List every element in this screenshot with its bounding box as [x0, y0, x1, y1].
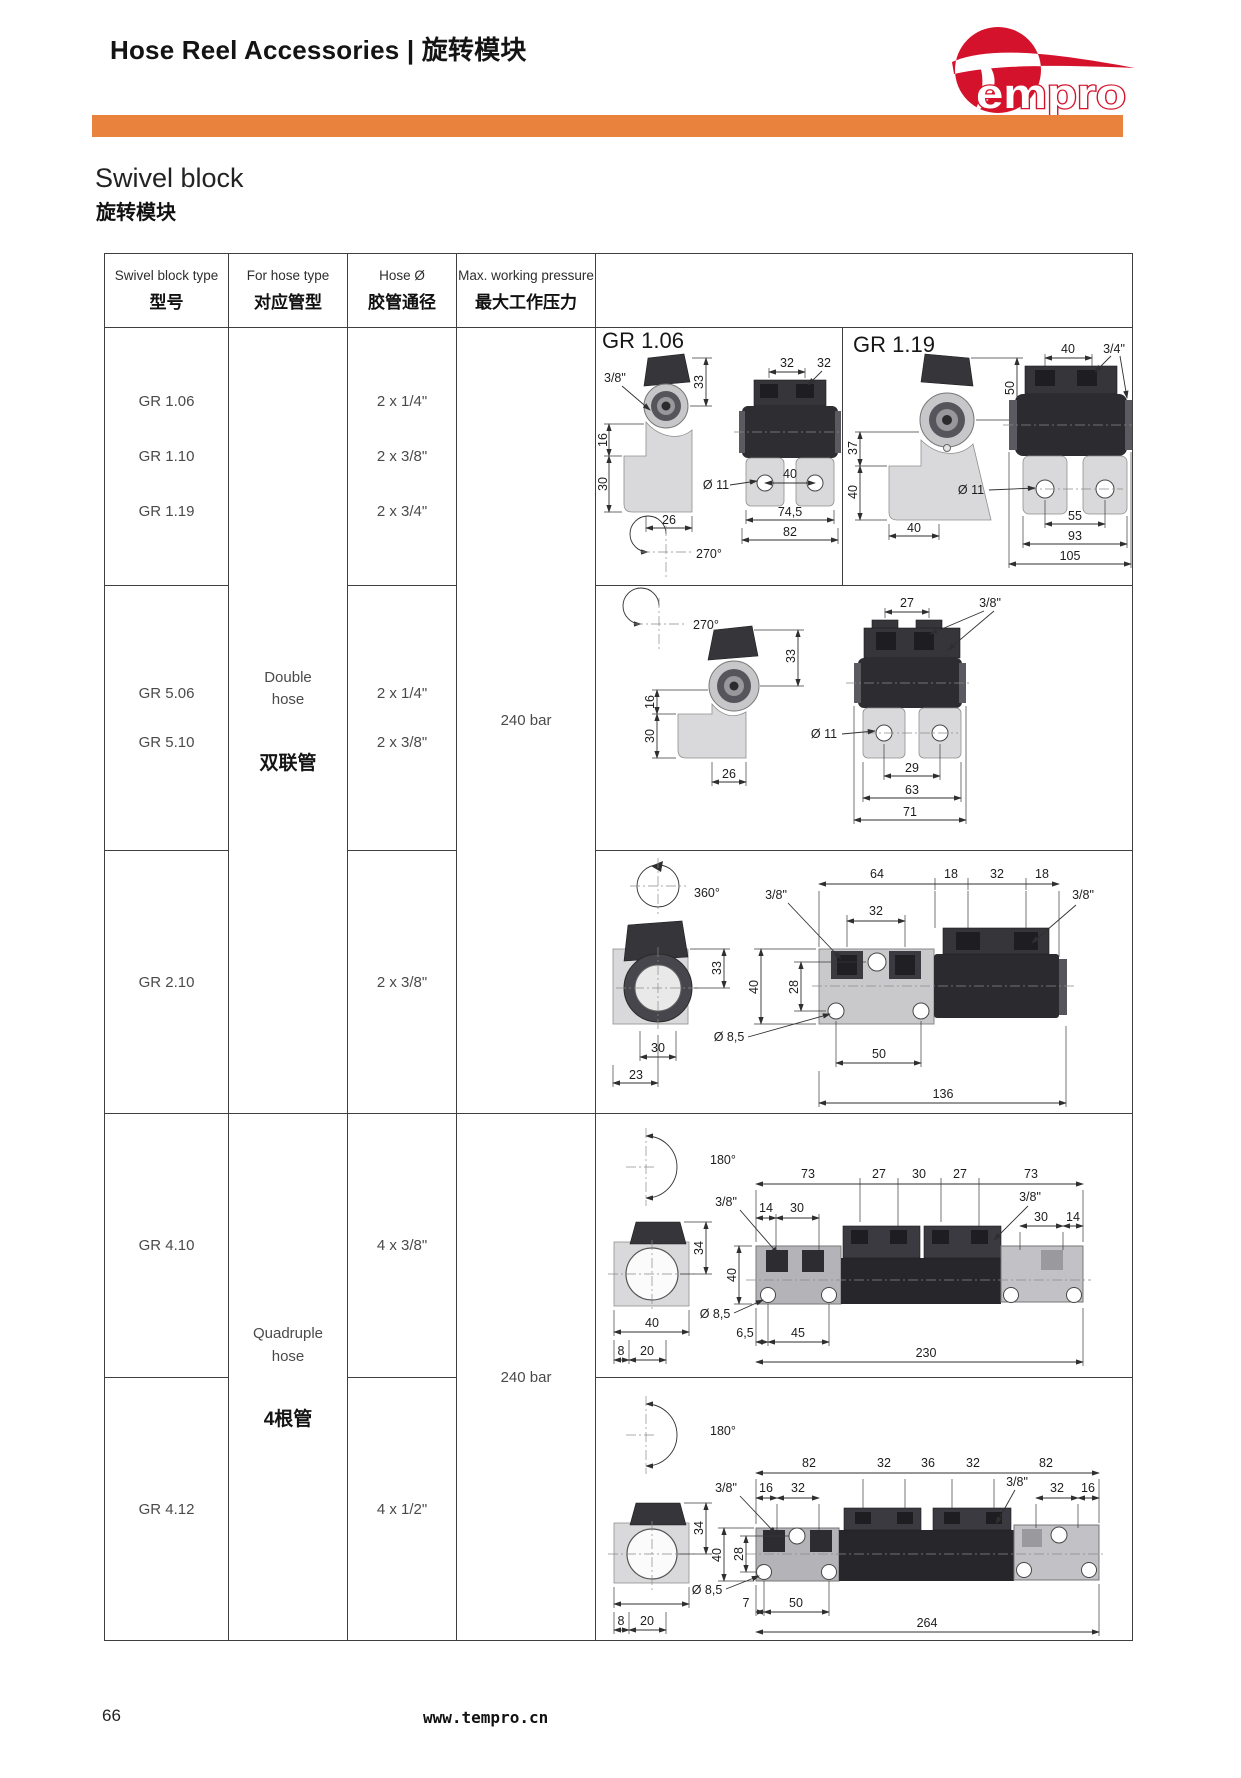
- dim-82: 82: [783, 525, 797, 539]
- dim-16: 16: [596, 433, 610, 447]
- dim-32-ports: 32: [869, 904, 883, 918]
- tempro-logo: empro: [938, 16, 1138, 118]
- model-name: GR 5.06: [139, 685, 195, 702]
- dim-14a: 14: [759, 1201, 773, 1215]
- hose-dia-group-5: 4 x 1/2": [348, 1378, 457, 1641]
- header-zh: 对应管型: [254, 288, 322, 313]
- hose-dia: 2 x 3/8": [377, 448, 427, 465]
- dim-105: 105: [1060, 549, 1081, 563]
- thread-label-left: 3/8": [715, 1195, 737, 1209]
- header-drawings: [596, 254, 1133, 328]
- drawing-cell-gr119: GR 1.19 50 37 40: [843, 328, 1133, 586]
- drawing-gr5: 270° 33 16 30 26: [596, 586, 1132, 850]
- dim-33: 33: [710, 961, 724, 975]
- model-name: GR 4.12: [139, 1501, 195, 1518]
- dim-30: 30: [596, 477, 610, 491]
- dim-50: 50: [872, 1047, 886, 1061]
- rotation-angle: 270°: [696, 547, 722, 561]
- drawing-gr412: 180° 34 8 20: [596, 1378, 1132, 1640]
- gr106-front-view: [734, 380, 842, 506]
- dim-26: 26: [662, 513, 676, 527]
- header-max-working-pressure: Max. working pressure 最大工作压力: [457, 254, 596, 328]
- dim-34: 34: [692, 1241, 706, 1255]
- gr106-side-view: [624, 354, 692, 512]
- dim-dia11: Ø 11: [703, 478, 729, 492]
- dim-32a-top: 32: [877, 1456, 891, 1470]
- dim-32b: 32: [817, 356, 831, 370]
- thread-label-left: 3/8": [715, 1481, 737, 1495]
- dim-27: 27: [900, 596, 914, 610]
- drawing-cell-gr5: 270° 33 16 30 26: [596, 586, 1133, 851]
- drawing-gr119: GR 1.19 50 37 40: [843, 328, 1132, 585]
- dim-34: 34: [692, 1521, 706, 1535]
- dim-73b: 73: [1024, 1167, 1038, 1181]
- swivel-block-table: Swivel block type 型号 For hose type 对应管型 …: [104, 253, 1133, 1641]
- drawing-gr410: 180° 34 40 8 20: [596, 1114, 1132, 1377]
- dim-93: 93: [1068, 529, 1082, 543]
- dim-30a: 30: [790, 1201, 804, 1215]
- header-en: Swivel block type: [115, 268, 219, 283]
- dim-230: 230: [916, 1346, 937, 1360]
- dim-45: 45: [791, 1326, 805, 1340]
- hose-type-en: Double hose: [247, 667, 329, 712]
- hose-type-double: Double hose 双联管: [229, 328, 348, 1114]
- dim-18a: 18: [944, 867, 958, 881]
- dim-27b: 27: [953, 1167, 967, 1181]
- model-name: GR 4.10: [139, 1237, 195, 1254]
- gr410-front-view: [746, 1226, 1091, 1304]
- gr119-front-view: [1003, 366, 1132, 514]
- dim-40-front: 40: [710, 1548, 724, 1562]
- drawing-cell-gr106: GR 1.06 3/8" 33 16 30: [596, 328, 843, 586]
- dim-23: 23: [629, 1068, 643, 1082]
- gr2-side-view: [613, 921, 700, 1031]
- gr5-front-view: [846, 620, 972, 758]
- rotation-angle: 180°: [710, 1153, 736, 1167]
- rotation-180-icon: [626, 1396, 677, 1474]
- dim-26: 26: [722, 767, 736, 781]
- pressure-value: 240 bar: [501, 712, 552, 729]
- hose-dia: 2 x 1/4": [377, 685, 427, 702]
- gr412-side-view: [608, 1503, 696, 1590]
- dim-64: 64: [870, 867, 884, 881]
- dim-33: 33: [692, 375, 706, 389]
- models-group-5: GR 4.12: [105, 1378, 229, 1641]
- dim-71: 71: [903, 805, 917, 819]
- dim-6-5: 6,5: [736, 1326, 753, 1340]
- pressure-value: 240 bar: [501, 1369, 552, 1386]
- dim-7: 7: [743, 1596, 750, 1610]
- hose-dia: 4 x 1/2": [377, 1501, 427, 1518]
- dim-73a: 73: [801, 1167, 815, 1181]
- dim-50: 50: [789, 1596, 803, 1610]
- dim-40: 40: [783, 467, 797, 481]
- dim-32-top: 32: [990, 867, 1004, 881]
- dim-40-bottom: 40: [907, 521, 921, 535]
- rotation-180-icon: [626, 1128, 677, 1206]
- header-en: Hose Ø: [379, 268, 425, 283]
- dim-dia85: Ø 8,5: [700, 1307, 731, 1321]
- dim-32b-sub: 32: [1050, 1481, 1064, 1495]
- rotation-270-icon: [630, 516, 692, 578]
- dim-16: 16: [643, 695, 657, 709]
- gr410-side-view: [608, 1222, 696, 1312]
- section-title-en: Swivel block: [95, 163, 244, 194]
- logo-wordmark: empro: [976, 70, 1126, 117]
- dim-16a: 16: [759, 1481, 773, 1495]
- dim-82a: 82: [802, 1456, 816, 1470]
- thread-label: 3/8": [604, 371, 626, 385]
- dim-37: 37: [846, 441, 860, 455]
- drawing-cell-gr410: 180° 34 40 8 20: [596, 1114, 1133, 1378]
- dim-20: 20: [640, 1344, 654, 1358]
- thread-label-right: 3/8": [1019, 1190, 1041, 1204]
- dim-30-top: 30: [912, 1167, 926, 1181]
- hose-dia-group-3: 2 x 3/8": [348, 851, 457, 1114]
- dim-8: 8: [618, 1344, 625, 1358]
- dim-32b-top: 32: [966, 1456, 980, 1470]
- dim-40: 40: [747, 980, 761, 994]
- dim-40-left: 40: [846, 485, 860, 499]
- dim-30: 30: [643, 729, 657, 743]
- thread-label-right: 3/8": [1072, 888, 1094, 902]
- website-url: www.tempro.cn: [423, 1708, 548, 1727]
- hose-dia-group-1: 2 x 1/4" 2 x 3/8" 2 x 3/4": [348, 328, 457, 586]
- header-zh: 最大工作压力: [475, 288, 577, 313]
- dim-8: 8: [618, 1614, 625, 1628]
- hose-dia-group-4: 4 x 3/8": [348, 1114, 457, 1378]
- hose-dia: 4 x 3/8": [377, 1237, 427, 1254]
- drawing-cell-gr412: 180° 34 8 20: [596, 1378, 1133, 1641]
- model-name: GR 1.10: [139, 448, 195, 465]
- drawing-label: GR 1.19: [853, 332, 935, 357]
- thread-label-right: 3/8": [1006, 1475, 1028, 1489]
- header-en: Max. working pressure: [458, 268, 594, 283]
- model-name: GR 5.10: [139, 734, 195, 751]
- section-title-zh: 旋转模块: [96, 196, 176, 225]
- header-zh: 型号: [150, 288, 184, 313]
- page-number: 66: [102, 1706, 121, 1726]
- gr5-side-view: [678, 626, 759, 758]
- model-name: GR 2.10: [139, 974, 195, 991]
- models-group-3: GR 2.10: [105, 851, 229, 1114]
- drawing-gr106: GR 1.06 3/8" 33 16 30: [596, 328, 842, 585]
- hose-dia: 2 x 3/4": [377, 503, 427, 520]
- dim-40-side: 40: [645, 1316, 659, 1330]
- header-hose-diameter: Hose Ø 胶管通径: [348, 254, 457, 328]
- dim-27a: 27: [872, 1167, 886, 1181]
- dim-136: 136: [933, 1087, 954, 1101]
- dim-dia85: Ø 8,5: [714, 1030, 745, 1044]
- models-group-4: GR 4.10: [105, 1114, 229, 1378]
- hose-type-en: Quadruple hose: [247, 1323, 329, 1368]
- dim-28: 28: [787, 980, 801, 994]
- rotation-angle: 180°: [710, 1424, 736, 1438]
- dim-28: 28: [732, 1547, 746, 1561]
- hose-dia-group-2: 2 x 1/4" 2 x 3/8": [348, 586, 457, 851]
- drawing-cell-gr2: 360° 33 30 23: [596, 851, 1133, 1114]
- dim-dia11: Ø 11: [958, 483, 984, 497]
- dim-16b: 16: [1081, 1481, 1095, 1495]
- dim-82b: 82: [1039, 1456, 1053, 1470]
- dim-40-top: 40: [1061, 342, 1075, 356]
- header-swivel-block-type: Swivel block type 型号: [105, 254, 229, 328]
- hose-type-zh: 双联管: [259, 748, 316, 775]
- catalog-page: Hose Reel Accessories | 旋转模块 empro Swive…: [0, 0, 1241, 1778]
- models-group-1: GR 1.06 GR 1.10 GR 1.19: [105, 328, 229, 586]
- thread-label-left: 3/8": [765, 888, 787, 902]
- gr412-front-view: [746, 1508, 1106, 1581]
- model-name: GR 1.06: [139, 393, 195, 410]
- dim-40-front: 40: [725, 1268, 739, 1282]
- dim-63: 63: [905, 783, 919, 797]
- header-for-hose-type: For hose type 对应管型: [229, 254, 348, 328]
- hose-type-quadruple: Quadruple hose 4根管: [229, 1114, 348, 1641]
- rotation-angle: 360°: [694, 886, 720, 900]
- model-name: GR 1.19: [139, 503, 195, 520]
- dim-dia11: Ø 11: [811, 727, 837, 741]
- hose-type-zh: 4根管: [264, 1404, 313, 1431]
- hose-dia: 2 x 1/4": [377, 393, 427, 410]
- thread-label: 3/8": [979, 596, 1001, 610]
- dim-50: 50: [1003, 381, 1017, 395]
- dim-264: 264: [917, 1616, 938, 1630]
- hose-dia: 2 x 3/8": [377, 974, 427, 991]
- gr2-front-view: [812, 928, 1074, 1024]
- dim-74-5: 74,5: [778, 505, 802, 519]
- drawing-label: GR 1.06: [602, 328, 684, 353]
- dim-30b: 30: [1034, 1210, 1048, 1224]
- page-title: Hose Reel Accessories | 旋转模块: [110, 30, 527, 67]
- rotation-360-icon: [630, 858, 686, 914]
- dim-20: 20: [640, 1614, 654, 1628]
- models-group-2: GR 5.06 GR 5.10: [105, 586, 229, 851]
- dim-14b: 14: [1066, 1210, 1080, 1224]
- dim-dia85: Ø 8,5: [692, 1583, 723, 1597]
- dim-18b: 18: [1035, 867, 1049, 881]
- rotation-270-icon: [623, 588, 687, 650]
- header-en: For hose type: [247, 268, 330, 283]
- drawing-gr2: 360° 33 30 23: [596, 851, 1132, 1113]
- thread-label: 3/4": [1103, 342, 1125, 356]
- dim-32a: 32: [780, 356, 794, 370]
- dim-36: 36: [921, 1456, 935, 1470]
- hose-dia: 2 x 3/8": [377, 734, 427, 751]
- dim-55: 55: [1068, 509, 1082, 523]
- dim-29: 29: [905, 761, 919, 775]
- pressure-span-1: 240 bar: [457, 328, 596, 1114]
- pressure-span-2: 240 bar: [457, 1114, 596, 1641]
- accent-bar: [92, 115, 1123, 137]
- header-zh: 胶管通径: [368, 288, 436, 313]
- dim-33: 33: [784, 649, 798, 663]
- dim-32a-sub: 32: [791, 1481, 805, 1495]
